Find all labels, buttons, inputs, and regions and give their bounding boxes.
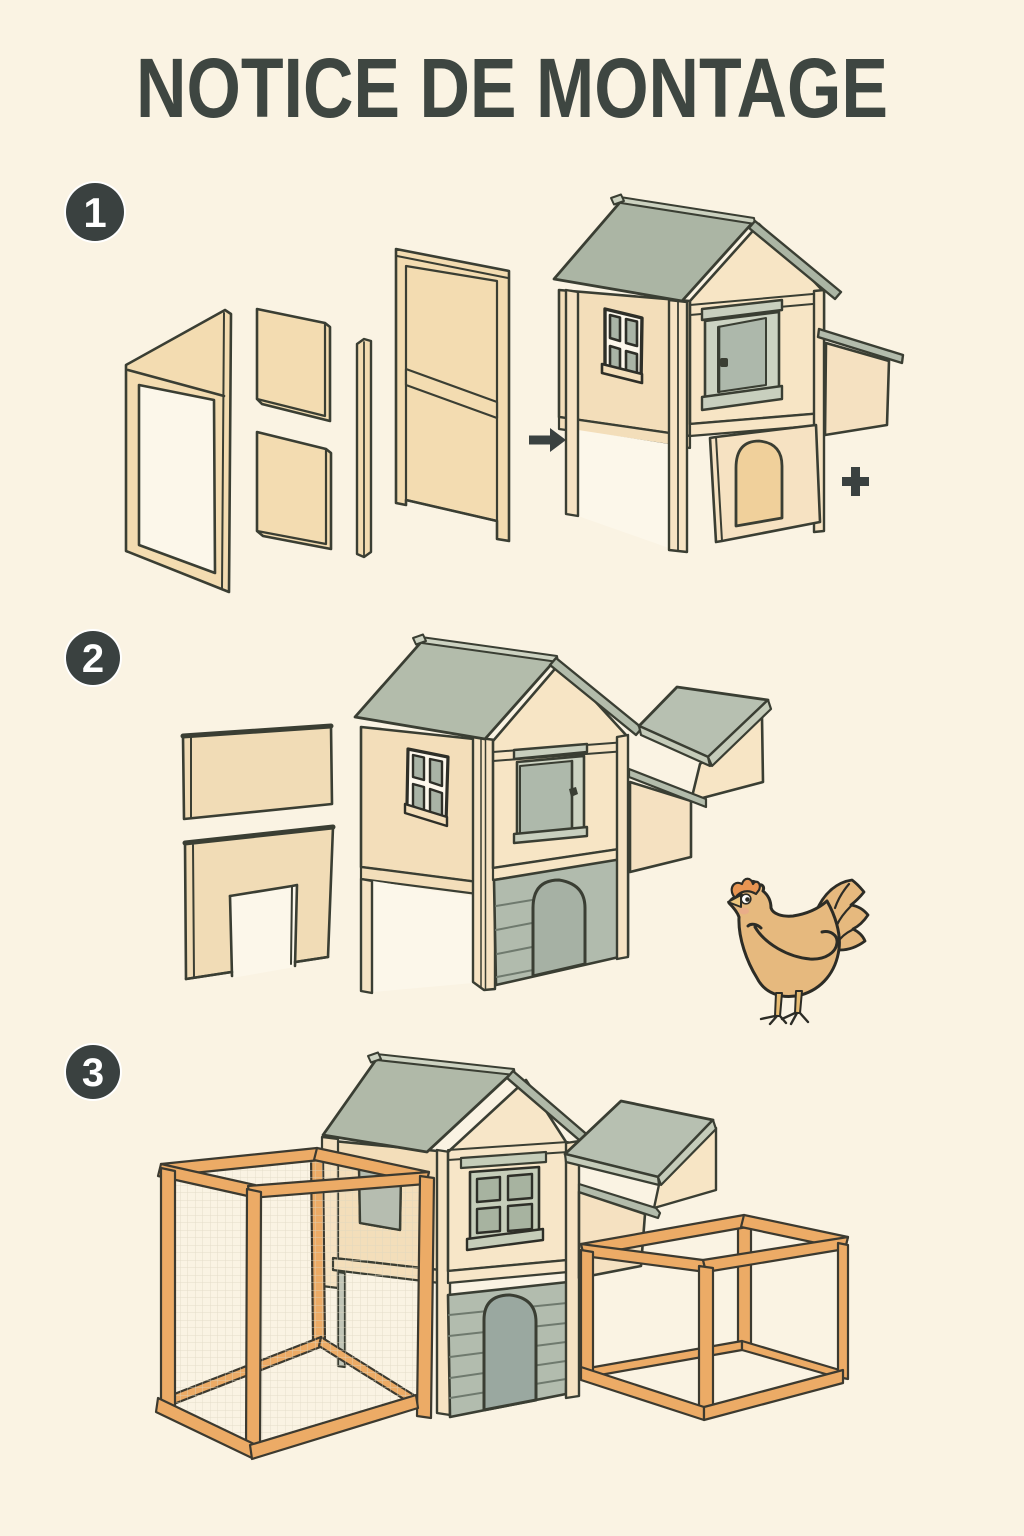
svg-text:1: 1: [83, 189, 106, 236]
svg-text:2: 2: [82, 637, 104, 681]
svg-text:3: 3: [82, 1051, 104, 1095]
svg-text:NOTICE DE MONTAGE: NOTICE DE MONTAGE: [136, 41, 888, 135]
